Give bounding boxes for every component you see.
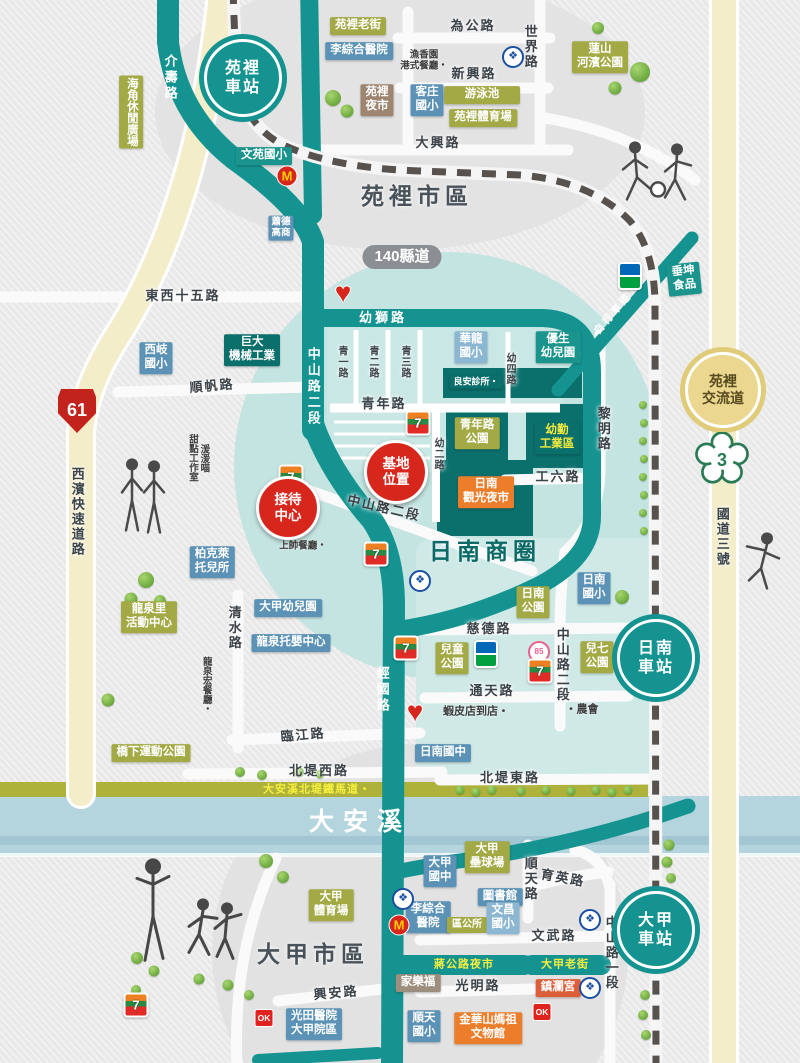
label-liangan-clinic: 良安診所・: [449, 376, 502, 389]
couple-illustration: [112, 452, 172, 542]
road-youshi: 幼獅路: [359, 310, 407, 326]
label-xiqi-elementary: 西岐 國小: [140, 342, 173, 374]
tree: [638, 1010, 648, 1020]
label-carrefour: 家樂福: [396, 974, 441, 992]
tree: [641, 1030, 651, 1040]
tree: [666, 873, 676, 883]
label-giant-machinery: 巨大 機械工業: [224, 334, 280, 366]
label-wenyuan-elementary: 文苑國小: [236, 147, 292, 165]
tree: [624, 786, 633, 795]
tree: [640, 419, 648, 427]
road-beidi-west: 北堤西路: [289, 763, 349, 779]
label-zhenlan-temple: 鎮瀾宮: [536, 979, 581, 997]
road-national-highway-3: 國道三號: [714, 507, 730, 567]
label-dajia-stadium: 大甲 體育場: [309, 889, 354, 921]
tree: [639, 509, 647, 517]
tree: [664, 840, 675, 851]
label-berkeley-nursery: 柏克萊 托兒所: [190, 546, 235, 578]
label-haijiao-leisure-plaza: 海角休閒廣場: [119, 76, 143, 149]
road-zhongshan-sec2-teal: 中山路二段: [305, 347, 321, 427]
interchange-yuanli: 苑裡 交流道: [685, 352, 761, 428]
skater-illustration: [737, 528, 787, 598]
note-longquanhong-restaurant: 龍泉宏餐廳・: [200, 657, 211, 714]
road-guangming: 光明路: [455, 978, 500, 994]
icon-familymart-1: [618, 262, 642, 290]
road-shuntian: 順天路: [522, 857, 538, 902]
label-li-hospital-dajia: 李綜合 醫院: [406, 901, 451, 933]
label-youqin-industrial-zone: 幼勤 工業區: [535, 422, 580, 454]
label-yuanli-night-market: 苑裡 夜市: [361, 84, 394, 116]
location-map: 苑裡老街為公路世界路李綜合醫院漁香園 港式餐廳・新興路❖蓮山 河濱公園苑裡 夜市…: [0, 0, 800, 1063]
shield-national-highway-3: 3: [695, 432, 749, 486]
road-jieshou: 介壽路: [162, 54, 178, 102]
note-dessert-studio: 湲湲喵 甜點工作室: [187, 434, 210, 482]
label-rinan-tourist-night-market: 日南 觀光夜市: [458, 476, 514, 508]
label-district-office: 區公所: [447, 917, 487, 933]
tree: [615, 590, 629, 604]
label-ertong-park: 兒童 公園: [436, 642, 469, 674]
label-hualong-elementary: 華龍 國小: [455, 331, 488, 363]
road-gong-6: 工六路: [535, 469, 580, 485]
station-dajia: 大甲 車站: [617, 891, 695, 969]
road-xinxing: 新興路: [451, 66, 496, 82]
icon-familymart-2: [474, 640, 498, 668]
figure-soccer-kids: [613, 137, 703, 222]
baseball-illustration: [125, 852, 245, 982]
site-reception-center: 接待 中心: [256, 476, 320, 540]
note-yuxiangyuan-restaurant: 漁香園 港式餐廳・: [400, 50, 448, 73]
icon-okmart-2: OK: [255, 1009, 274, 1027]
tree: [102, 694, 115, 707]
label-qingnian-road-park: 青年路 公園: [455, 417, 500, 449]
label-qiaoxia-sports-park: 橋下運動公園: [112, 744, 191, 762]
tree: [138, 572, 154, 588]
label-wenchang-elementary: 文昌 國小: [487, 902, 520, 934]
tree: [325, 90, 341, 106]
icon-cpc-2: ❖: [409, 570, 431, 592]
road-wenwu: 文武路: [531, 928, 576, 944]
tree: [639, 437, 647, 445]
label-jianggong-road-night-market: 蔣公路夜市: [434, 958, 494, 971]
tree: [244, 990, 254, 1000]
label-xiaode-vocational: 蕭德 高商: [268, 216, 293, 241]
tree: [609, 82, 622, 95]
label-rinan-elementary: 日南 國小: [578, 572, 611, 604]
label-rinan-park: 日南 公園: [517, 586, 550, 618]
soccer-kids-illustration: [613, 137, 703, 217]
tree: [517, 787, 526, 796]
icon-seven-4: 7: [528, 659, 553, 684]
label-longquanli-activity-center: 龍泉里 活動中心: [121, 601, 177, 633]
tree: [257, 770, 267, 780]
icon-cpc-3: ❖: [392, 888, 414, 910]
label-jinhuashan-mazu-museum: 金華山媽祖 文物館: [454, 1012, 522, 1044]
note-farmers-association: ・農會: [566, 703, 599, 716]
road-qingshui: 清水路: [226, 606, 242, 651]
icon-cpc-5: ❖: [579, 977, 601, 999]
icon-hilife-2: ♥: [407, 698, 424, 726]
tree: [639, 401, 647, 409]
label-yuanli-stadium: 苑裡體育場: [449, 109, 517, 127]
label-chuikun-foods: 垂坤 食品: [666, 262, 702, 297]
icon-seven-5: 7: [394, 636, 419, 661]
tree: [456, 786, 465, 795]
station-rinan: 日南 車站: [617, 619, 695, 697]
road-liming: 黎明路: [595, 407, 611, 452]
note-shangshuai-restaurant: 上帥餐廳・: [279, 540, 327, 551]
area-dajia-downtown: 大甲市區: [257, 941, 369, 969]
road-weigong: 為公路: [450, 18, 495, 34]
tree: [630, 62, 650, 82]
label-dajia-junior-high: 大甲 國中: [424, 855, 457, 887]
tree: [488, 786, 497, 795]
tree: [259, 854, 273, 868]
label-dajia-old-street: 大甲老街: [541, 958, 589, 971]
tree: [592, 786, 601, 795]
tree: [640, 990, 650, 1000]
label-dajia-kindergarten: 大甲幼兒園: [254, 599, 322, 617]
icon-cpc-1: ❖: [502, 46, 524, 68]
label-levee-bikeway: 大安溪北堤鐵馬道・: [263, 783, 371, 796]
label-kezhuang-elementary: 客庄 國小: [411, 84, 444, 116]
station-yuanli: 苑裡 車站: [204, 39, 282, 117]
tree: [592, 22, 604, 34]
site-location-marker: 基地 位置: [364, 440, 428, 504]
icon-seven-6: 7: [124, 993, 149, 1018]
note-shopee-store: 蝦皮店到店・: [443, 705, 509, 718]
road-qing-1: 青一路: [335, 346, 347, 379]
icon-seven-3: 7: [364, 542, 389, 567]
road-qing-2: 青二路: [366, 346, 378, 379]
area-rinan-shopping-district: 日南商圈: [429, 538, 541, 566]
tree: [640, 455, 648, 463]
tree: [542, 786, 551, 795]
label-longquan-infant-center: 龍泉托嬰中心: [252, 634, 331, 652]
label-shuntian-elementary: 順天 國小: [408, 1010, 441, 1042]
tree: [472, 788, 481, 797]
icon-mcdonalds-1: M: [277, 166, 298, 187]
badge-county-route-140: 140縣道: [362, 245, 441, 269]
tree: [639, 473, 647, 481]
road-you-2: 幼二路: [431, 438, 443, 471]
label-guangtian-hospital-dajia: 光田醫院 大甲院區: [286, 1008, 342, 1040]
area-yuanli-downtown: 苑裡市區: [361, 183, 473, 211]
road-qing-3: 青三路: [398, 346, 410, 379]
road-daxing: 大興路: [415, 135, 460, 151]
road-jingguo: 經國路: [374, 666, 390, 714]
tree: [341, 105, 354, 118]
road-tongtian: 通天路: [469, 683, 514, 699]
road-qingnian: 青年路: [361, 396, 406, 412]
label-lianshan-riverside-park: 蓮山 河濱公園: [572, 41, 628, 73]
road-dongxi-15: 東西十五路: [145, 288, 220, 304]
road-cide: 慈德路: [466, 621, 511, 637]
label-rinan-junior-high: 日南國中: [415, 744, 471, 762]
tree: [567, 787, 576, 796]
road-shijie: 世界路: [522, 25, 538, 70]
tree: [662, 857, 673, 868]
icon-seven-1: 7: [406, 411, 431, 436]
shield-national-highway-3-label: 3: [695, 432, 749, 486]
tree: [235, 767, 245, 777]
road-beidi-east: 北堤東路: [480, 770, 540, 786]
icon-hilife-1: ♥: [335, 279, 352, 307]
figure-baseball-players: [125, 852, 245, 987]
icon-mcdonalds-2: M: [389, 915, 410, 936]
tree: [277, 871, 289, 883]
label-li-hospital: 李綜合醫院: [325, 42, 393, 60]
label-swimming-pool: 游泳池: [444, 86, 520, 104]
label-yuanli-old-street: 苑裡老街: [330, 17, 386, 35]
river-daan: 大安溪: [309, 807, 411, 837]
figure-skater: [737, 528, 787, 603]
label-dajia-softball-field: 大甲 壘球場: [465, 841, 510, 873]
road-xibin-expressway: 西濱快速道路: [69, 467, 85, 557]
figure-walking-couple: [112, 452, 172, 547]
road-zhongshan-sec2-right: 中山路二段: [554, 628, 570, 703]
tree: [640, 527, 648, 535]
tree: [640, 491, 648, 499]
road-you-4: 幼四路: [503, 353, 515, 386]
tree: [608, 788, 617, 797]
icon-cpc-4: ❖: [579, 909, 601, 931]
icon-okmart-1: OK: [533, 1003, 552, 1021]
label-yousheng-kindergarten: 優生 幼兒園: [536, 331, 581, 363]
label-er7-park: 兒七 公園: [581, 641, 614, 673]
